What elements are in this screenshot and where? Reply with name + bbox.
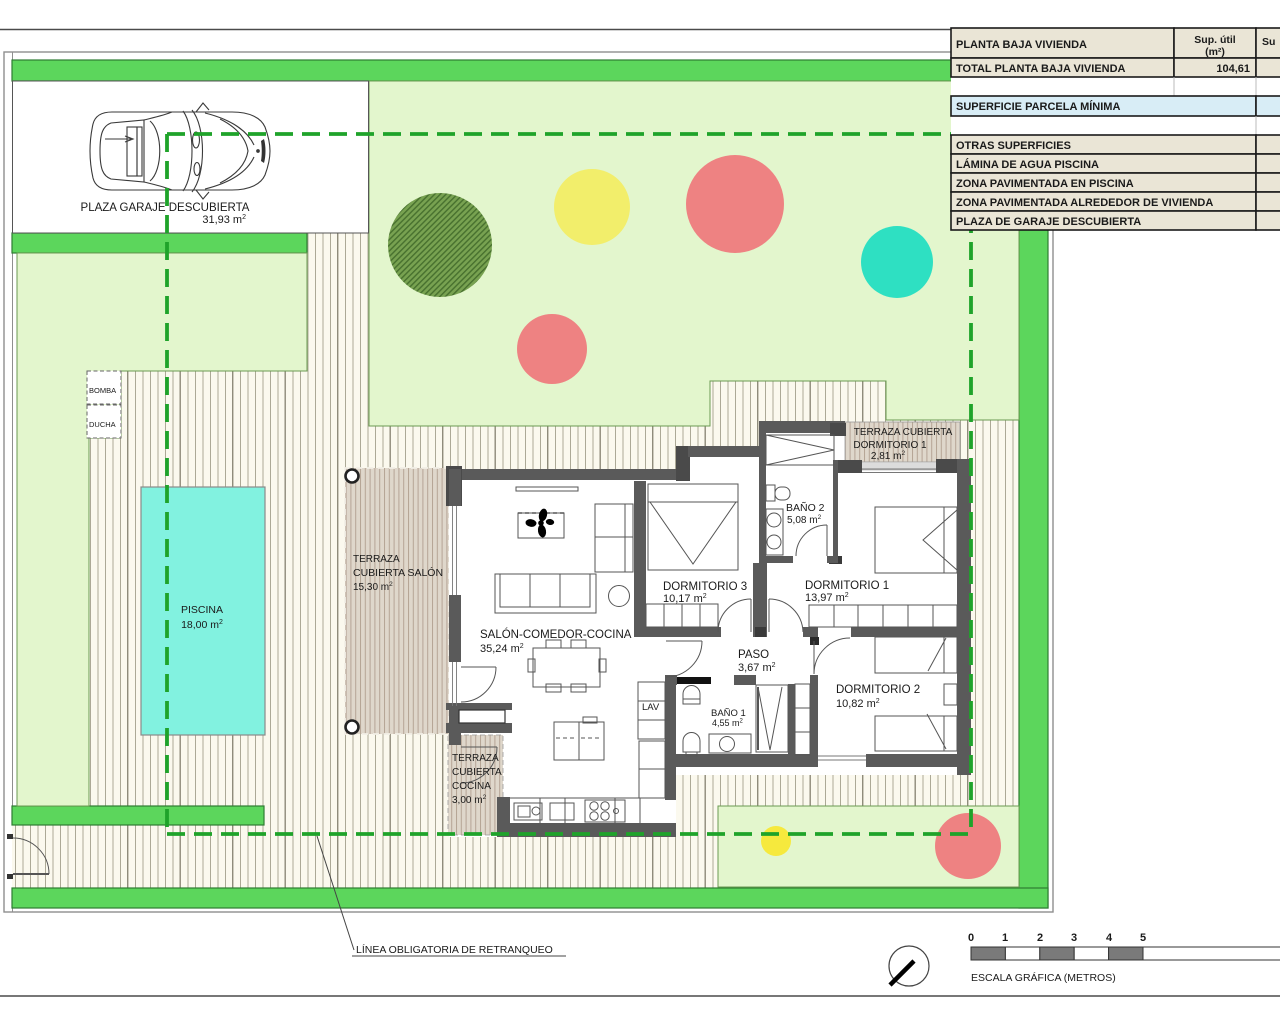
svg-text:BAÑO 2: BAÑO 2 <box>786 501 825 514</box>
svg-text:Sup. útil: Sup. útil <box>1194 34 1235 46</box>
svg-text:DORMITORIO 3: DORMITORIO 3 <box>663 581 747 593</box>
svg-text:2,81 m2: 2,81 m2 <box>871 450 906 462</box>
svg-text:CUBIERTA: CUBIERTA <box>452 767 502 778</box>
svg-text:LÁMINA DE AGUA PISCINA: LÁMINA DE AGUA PISCINA <box>956 158 1099 171</box>
svg-text:TERRAZA CUBIERTA: TERRAZA CUBIERTA <box>854 427 953 438</box>
svg-text:DORMITORIO 2: DORMITORIO 2 <box>836 684 920 696</box>
svg-text:4,55 m2: 4,55 m2 <box>712 718 744 728</box>
svg-text:35,24 m2: 35,24 m2 <box>480 643 524 655</box>
svg-text:LAV: LAV <box>642 702 660 713</box>
svg-text:PASO: PASO <box>738 649 769 661</box>
svg-text:3,67 m2: 3,67 m2 <box>738 662 776 674</box>
svg-text:0: 0 <box>968 932 974 944</box>
svg-text:TERRAZA: TERRAZA <box>452 753 499 764</box>
svg-text:COCINA: COCINA <box>452 781 491 792</box>
svg-text:15,30 m2: 15,30 m2 <box>353 581 393 593</box>
svg-text:3,00 m2: 3,00 m2 <box>452 794 487 806</box>
svg-text:SUPERFICIE PARCELA MÍNIMA: SUPERFICIE PARCELA MÍNIMA <box>956 100 1120 113</box>
svg-text:18,00 m2: 18,00 m2 <box>181 619 223 631</box>
svg-text:SALÓN-COMEDOR-COCINA: SALÓN-COMEDOR-COCINA <box>480 628 632 641</box>
svg-text:ESCALA GRÁFICA (METROS): ESCALA GRÁFICA (METROS) <box>971 971 1116 984</box>
svg-text:5: 5 <box>1140 932 1146 944</box>
svg-text:DUCHA: DUCHA <box>89 420 116 429</box>
svg-text:CUBIERTA SALÓN: CUBIERTA SALÓN <box>353 566 443 579</box>
svg-text:DORMITORIO 1: DORMITORIO 1 <box>853 440 927 451</box>
svg-text:13,97 m2: 13,97 m2 <box>805 592 849 604</box>
svg-text:10,82 m2: 10,82 m2 <box>836 698 880 710</box>
svg-text:OTRAS SUPERFICIES: OTRAS SUPERFICIES <box>956 140 1071 152</box>
svg-text:BOMBA: BOMBA <box>89 386 116 395</box>
svg-text:TOTAL PLANTA BAJA VIVIENDA: TOTAL PLANTA BAJA VIVIENDA <box>956 63 1126 75</box>
svg-text:Su: Su <box>1262 36 1275 48</box>
svg-text:10,17 m2: 10,17 m2 <box>663 593 707 605</box>
svg-text:2: 2 <box>1037 932 1043 944</box>
svg-text:4: 4 <box>1106 932 1113 944</box>
svg-text:(m²): (m²) <box>1205 46 1225 58</box>
svg-text:1: 1 <box>1002 932 1008 944</box>
svg-text:104,61: 104,61 <box>1216 63 1250 75</box>
svg-text:5,08 m2: 5,08 m2 <box>787 514 822 526</box>
svg-text:31,93 m2: 31,93 m2 <box>202 214 246 226</box>
svg-text:PLAZA DE GARAJE DESCUBIERTA: PLAZA DE GARAJE DESCUBIERTA <box>956 216 1141 228</box>
svg-text:LÍNEA OBLIGATORIA DE RETRANQUE: LÍNEA OBLIGATORIA DE RETRANQUEO <box>356 943 553 956</box>
svg-text:TERRAZA: TERRAZA <box>353 554 400 565</box>
svg-text:ZONA PAVIMENTADA ALREDEDOR DE: ZONA PAVIMENTADA ALREDEDOR DE VIVIENDA <box>956 197 1213 209</box>
svg-text:PLANTA BAJA VIVIENDA: PLANTA BAJA VIVIENDA <box>956 39 1087 51</box>
svg-text:DORMITORIO 1: DORMITORIO 1 <box>805 580 889 592</box>
svg-text:3: 3 <box>1071 932 1077 944</box>
svg-text:ZONA PAVIMENTADA EN PISCINA: ZONA PAVIMENTADA EN PISCINA <box>956 178 1134 190</box>
svg-text:PISCINA: PISCINA <box>181 604 223 616</box>
